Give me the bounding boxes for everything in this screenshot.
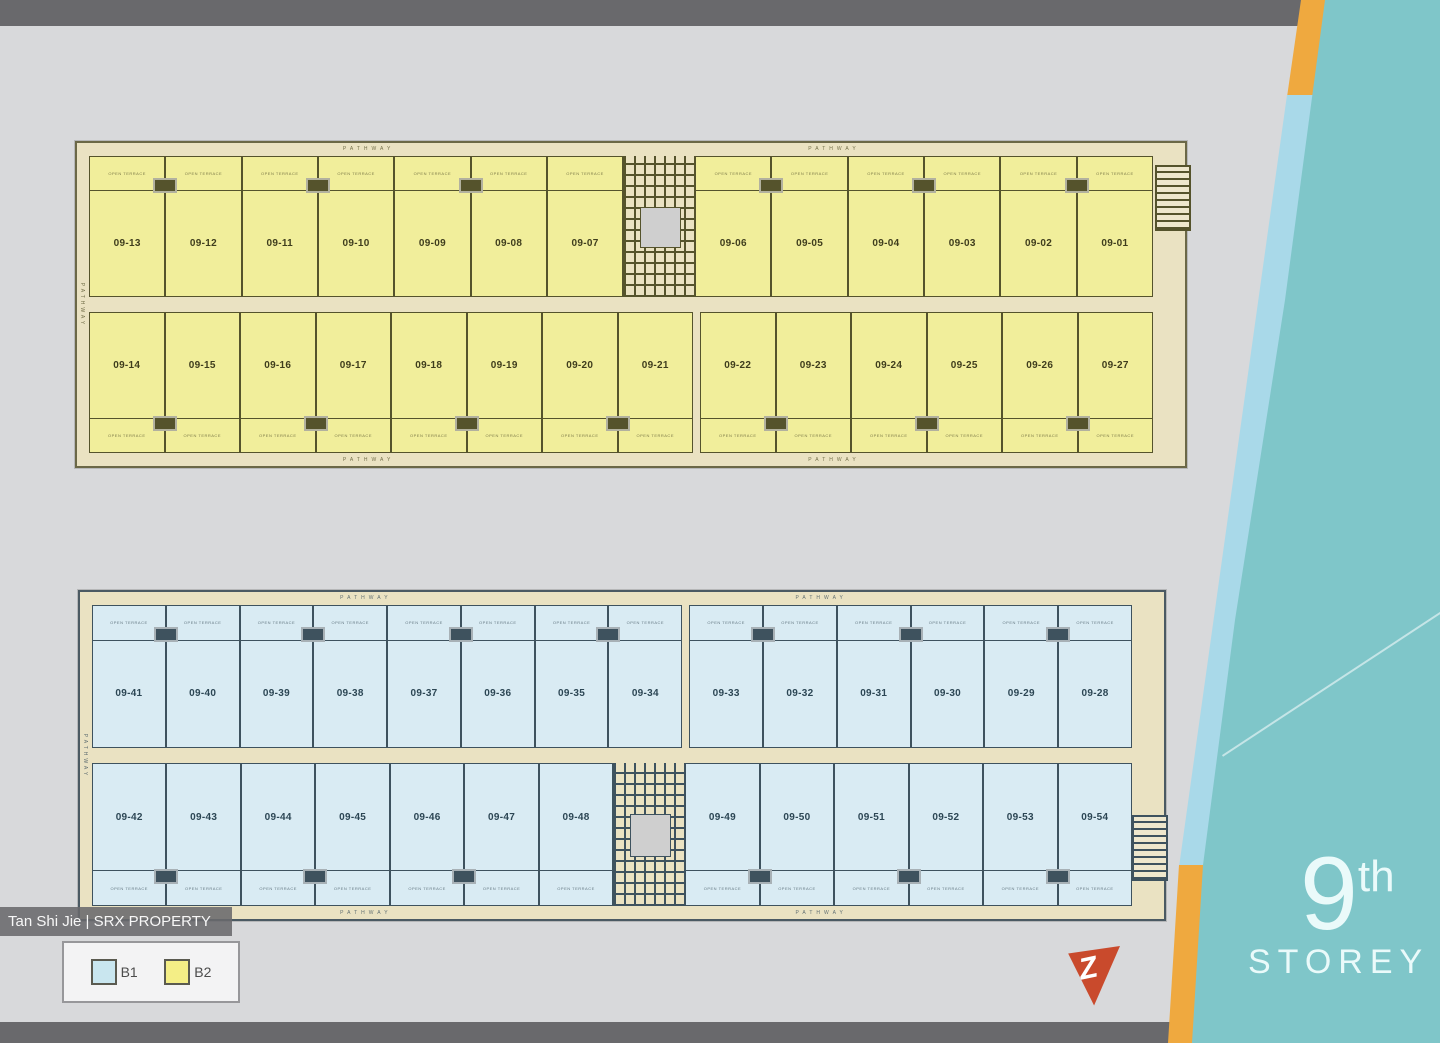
terrace-label: OPEN TERRACE (259, 886, 297, 891)
terrace-label: OPEN TERRACE (853, 886, 891, 891)
unit-number: 09-05 (772, 191, 846, 296)
unit-number: 09-48 (540, 764, 612, 870)
unit-number: 09-39 (241, 641, 313, 747)
wall-gap (693, 312, 700, 453)
toilet-fixture (154, 869, 178, 884)
unit-number: 09-03 (925, 191, 999, 296)
pathway-label: PATHWAY (340, 595, 391, 601)
legend-swatch-b1 (91, 959, 117, 985)
units-row-top: OPEN TERRACE09-41OPEN TERRACE09-40OPEN T… (92, 605, 1132, 748)
terrace-label: OPEN TERRACE (1021, 433, 1059, 438)
unit-09-53: OPEN TERRACE09-53 (983, 763, 1057, 906)
terrace-strip: OPEN TERRACE (925, 157, 999, 191)
toilet-fixture (915, 416, 939, 431)
terrace-strip: OPEN TERRACE (1078, 157, 1152, 191)
terrace-label: OPEN TERRACE (553, 620, 591, 625)
pathway-label-vertical: PATHWAY (79, 282, 85, 326)
unit-09-30: OPEN TERRACE09-30 (911, 605, 985, 748)
terrace-label: OPEN TERRACE (258, 620, 296, 625)
terrace-label: OPEN TERRACE (261, 171, 299, 176)
unit-09-49: OPEN TERRACE09-49 (685, 763, 759, 906)
unit-number: 09-35 (536, 641, 608, 747)
unit-number: 09-20 (543, 313, 617, 418)
legend-item-b1: B1 (91, 959, 138, 985)
unit-number: 09-04 (849, 191, 923, 296)
terrace-label: OPEN TERRACE (561, 433, 599, 438)
toilet-fixture (1065, 178, 1089, 193)
unit-number: 09-06 (696, 191, 770, 296)
unit-09-52: OPEN TERRACE09-52 (909, 763, 983, 906)
unit-09-01: OPEN TERRACE09-01 (1077, 156, 1153, 297)
terrace-label: OPEN TERRACE (108, 433, 146, 438)
unit-number: 09-18 (392, 313, 466, 418)
pathway-label: PATHWAY (795, 595, 846, 601)
terrace-label: OPEN TERRACE (110, 886, 148, 891)
corridor (89, 297, 1153, 312)
unit-number: 09-40 (167, 641, 239, 747)
terrace-strip: OPEN TERRACE (319, 157, 393, 191)
unit-number: 09-36 (462, 641, 534, 747)
toilet-fixture (304, 416, 328, 431)
unit-number: 09-30 (912, 641, 984, 747)
toilet-fixture (153, 416, 177, 431)
unit-number: 09-19 (468, 313, 542, 418)
unit-09-17: OPEN TERRACE09-17 (316, 312, 392, 453)
unit-09-40: OPEN TERRACE09-40 (166, 605, 240, 748)
toilet-fixture (899, 627, 923, 642)
watermark: Tan Shi Jie | SRX PROPERTY (0, 907, 232, 936)
unit-number: 09-33 (690, 641, 762, 747)
terrace-label: OPEN TERRACE (405, 620, 443, 625)
toilet-fixture (1046, 869, 1070, 884)
unit-09-36: OPEN TERRACE09-36 (461, 605, 535, 748)
stairwell (1155, 165, 1191, 231)
terrace-label: OPEN TERRACE (483, 886, 521, 891)
toilet-fixture (1066, 416, 1090, 431)
toilet-fixture (303, 869, 327, 884)
unit-number: 09-38 (314, 641, 386, 747)
terrace-label: OPEN TERRACE (704, 886, 742, 891)
terrace-label: OPEN TERRACE (414, 171, 452, 176)
unit-number: 09-09 (395, 191, 469, 296)
terrace-label: OPEN TERRACE (566, 171, 604, 176)
unit-number: 09-54 (1059, 764, 1131, 870)
unit-09-54: OPEN TERRACE09-54 (1058, 763, 1132, 906)
toilet-fixture (897, 869, 921, 884)
terrace-label: OPEN TERRACE (781, 620, 819, 625)
unit-number: 09-08 (472, 191, 546, 296)
unit-09-38: OPEN TERRACE09-38 (313, 605, 387, 748)
unit-09-51: OPEN TERRACE09-51 (834, 763, 908, 906)
unit-number: 09-37 (388, 641, 460, 747)
unit-09-44: OPEN TERRACE09-44 (241, 763, 315, 906)
unit-09-24: OPEN TERRACE09-24 (851, 312, 927, 453)
stairwell (1132, 815, 1168, 881)
unit-number: 09-12 (166, 191, 240, 296)
unit-09-14: OPEN TERRACE09-14 (89, 312, 165, 453)
terrace-strip: OPEN TERRACE (928, 418, 1002, 452)
decorative-line (1222, 611, 1440, 757)
terrace-strip: OPEN TERRACE (548, 157, 622, 191)
terrace-label: OPEN TERRACE (185, 171, 223, 176)
unit-09-46: OPEN TERRACE09-46 (390, 763, 464, 906)
terrace-label: OPEN TERRACE (946, 433, 984, 438)
unit-09-12: OPEN TERRACE09-12 (165, 156, 241, 297)
unit-number: 09-47 (465, 764, 537, 870)
toilet-fixture (306, 178, 330, 193)
terrace-label: OPEN TERRACE (627, 620, 665, 625)
unit-number: 09-15 (166, 313, 240, 418)
toilet-fixture (459, 178, 483, 193)
unit-09-32: OPEN TERRACE09-32 (763, 605, 837, 748)
unit-number: 09-50 (761, 764, 833, 870)
terrace-label: OPEN TERRACE (929, 620, 967, 625)
units-row-bottom: OPEN TERRACE09-42OPEN TERRACE09-43OPEN T… (92, 763, 1132, 906)
legend-label-b1: B1 (121, 964, 138, 980)
terrace-label: OPEN TERRACE (870, 433, 908, 438)
unit-number: 09-29 (985, 641, 1057, 747)
unit-09-23: OPEN TERRACE09-23 (776, 312, 852, 453)
terrace-label: OPEN TERRACE (1076, 620, 1114, 625)
unit-09-16: OPEN TERRACE09-16 (240, 312, 316, 453)
unit-09-48: OPEN TERRACE09-48 (539, 763, 613, 906)
unit-09-08: OPEN TERRACE09-08 (471, 156, 547, 297)
terrace-strip: OPEN TERRACE (777, 418, 851, 452)
terrace-label: OPEN TERRACE (707, 620, 745, 625)
unit-09-50: OPEN TERRACE09-50 (760, 763, 834, 906)
unit-number: 09-43 (167, 764, 239, 870)
unit-number: 09-16 (241, 313, 315, 418)
toilet-fixture (452, 869, 476, 884)
unit-09-42: OPEN TERRACE09-42 (92, 763, 166, 906)
unit-09-19: OPEN TERRACE09-19 (467, 312, 543, 453)
terrace-strip: OPEN TERRACE (166, 157, 240, 191)
unit-number: 09-13 (90, 191, 164, 296)
unit-number: 09-46 (391, 764, 463, 870)
corridor (92, 748, 1132, 763)
unit-number: 09-26 (1003, 313, 1077, 418)
unit-09-10: OPEN TERRACE09-10 (318, 156, 394, 297)
pathway-label: PATHWAY (808, 457, 859, 463)
unit-09-15: OPEN TERRACE09-15 (165, 312, 241, 453)
terrace-strip: OPEN TERRACE (472, 157, 546, 191)
srx-logo-icon: Z (1066, 946, 1120, 1008)
units-row-top: OPEN TERRACE09-13OPEN TERRACE09-12OPEN T… (89, 156, 1153, 297)
terrace-label: OPEN TERRACE (335, 433, 373, 438)
terrace-strip: OPEN TERRACE (619, 418, 693, 452)
terrace-label: OPEN TERRACE (927, 886, 965, 891)
legend-swatch-b2 (164, 959, 190, 985)
unit-number: 09-01 (1078, 191, 1152, 296)
terrace-label: OPEN TERRACE (795, 433, 833, 438)
terrace-label: OPEN TERRACE (331, 620, 369, 625)
terrace-strip: OPEN TERRACE (468, 418, 542, 452)
unit-09-18: OPEN TERRACE09-18 (391, 312, 467, 453)
terrace-label: OPEN TERRACE (867, 171, 905, 176)
terrace-label: OPEN TERRACE (791, 171, 829, 176)
pathway-label: PATHWAY (343, 146, 394, 152)
storey-word: STOREY (1248, 943, 1429, 982)
toilet-fixture (153, 178, 177, 193)
unit-number: 09-25 (928, 313, 1002, 418)
legend-item-b2: B2 (164, 959, 211, 985)
terrace-label: OPEN TERRACE (557, 886, 595, 891)
unit-number: 09-51 (835, 764, 907, 870)
unit-09-34: OPEN TERRACE09-34 (608, 605, 682, 748)
storey-number: 9 (1300, 853, 1358, 935)
unit-number: 09-21 (619, 313, 693, 418)
unit-number: 09-10 (319, 191, 393, 296)
service-core (623, 156, 695, 297)
terrace-label: OPEN TERRACE (408, 886, 446, 891)
terrace-strip: OPEN TERRACE (772, 157, 846, 191)
terrace-label: OPEN TERRACE (637, 433, 675, 438)
terrace-label: OPEN TERRACE (184, 433, 222, 438)
unit-09-27: OPEN TERRACE09-27 (1078, 312, 1154, 453)
unit-number: 09-28 (1059, 641, 1131, 747)
unit-number: 09-27 (1079, 313, 1153, 418)
unit-number: 09-34 (609, 641, 681, 747)
unit-09-22: OPEN TERRACE09-22 (700, 312, 776, 453)
unit-number: 09-52 (910, 764, 982, 870)
toilet-fixture (751, 627, 775, 642)
terrace-strip: OPEN TERRACE (166, 418, 240, 452)
block-b1: PATHWAY PATHWAY OPEN TERRACE09-41OPEN TE… (78, 590, 1166, 921)
top-bar (0, 0, 1440, 26)
toilet-fixture (759, 178, 783, 193)
terrace-label: OPEN TERRACE (715, 171, 753, 176)
terrace-strip: OPEN TERRACE (317, 418, 391, 452)
storey-suffix: th (1358, 855, 1395, 899)
terrace-label: OPEN TERRACE (184, 620, 222, 625)
toilet-fixture (764, 416, 788, 431)
terrace-label: OPEN TERRACE (110, 620, 148, 625)
wall-gap (682, 605, 689, 748)
unit-number: 09-31 (838, 641, 910, 747)
pathway-label: PATHWAY (795, 910, 846, 916)
pathway-label: PATHWAY (808, 146, 859, 152)
unit-number: 09-17 (317, 313, 391, 418)
unit-09-45: OPEN TERRACE09-45 (315, 763, 389, 906)
unit-09-26: OPEN TERRACE09-26 (1002, 312, 1078, 453)
storey-badge: 9 th STOREY (1248, 853, 1429, 982)
unit-number: 09-49 (686, 764, 758, 870)
terrace-label: OPEN TERRACE (334, 886, 372, 891)
unit-09-25: OPEN TERRACE09-25 (927, 312, 1003, 453)
terrace-label: OPEN TERRACE (1003, 620, 1041, 625)
terrace-label: OPEN TERRACE (855, 620, 893, 625)
unit-number: 09-42 (93, 764, 165, 870)
unit-09-43: OPEN TERRACE09-43 (166, 763, 240, 906)
terrace-label: OPEN TERRACE (944, 171, 982, 176)
unit-number: 09-11 (243, 191, 317, 296)
toilet-fixture (301, 627, 325, 642)
units-row-bottom: OPEN TERRACE09-14OPEN TERRACE09-15OPEN T… (89, 312, 1153, 453)
terrace-label: OPEN TERRACE (486, 433, 524, 438)
unit-09-05: OPEN TERRACE09-05 (771, 156, 847, 297)
terrace-label: OPEN TERRACE (1097, 433, 1135, 438)
terrace-label: OPEN TERRACE (778, 886, 816, 891)
floor-plan-canvas: PATHWAY PATHWAY OPEN TERRACE09-13OPEN TE… (0, 0, 1440, 1043)
unit-number: 09-14 (90, 313, 164, 418)
terrace-label: OPEN TERRACE (479, 620, 517, 625)
unit-number: 09-07 (548, 191, 622, 296)
toilet-fixture (596, 627, 620, 642)
terrace-label: OPEN TERRACE (108, 171, 146, 176)
unit-09-21: OPEN TERRACE09-21 (618, 312, 694, 453)
toilet-fixture (154, 627, 178, 642)
toilet-fixture (606, 416, 630, 431)
unit-09-20: OPEN TERRACE09-20 (542, 312, 618, 453)
terrace-strip: OPEN TERRACE (1079, 418, 1153, 452)
unit-number: 09-53 (984, 764, 1056, 870)
terrace-label: OPEN TERRACE (337, 171, 375, 176)
unit-number: 09-22 (701, 313, 775, 418)
terrace-label: OPEN TERRACE (259, 433, 297, 438)
unit-09-28: OPEN TERRACE09-28 (1058, 605, 1132, 748)
terrace-strip: OPEN TERRACE (540, 870, 612, 905)
unit-number: 09-24 (852, 313, 926, 418)
pathway-label-vertical: PATHWAY (82, 733, 88, 777)
terrace-label: OPEN TERRACE (1002, 886, 1040, 891)
toilet-fixture (449, 627, 473, 642)
pathway-label: PATHWAY (340, 910, 391, 916)
unit-number: 09-41 (93, 641, 165, 747)
unit-09-47: OPEN TERRACE09-47 (464, 763, 538, 906)
unit-number: 09-32 (764, 641, 836, 747)
terrace-label: OPEN TERRACE (410, 433, 448, 438)
unit-number: 09-23 (777, 313, 851, 418)
legend-label-b2: B2 (194, 964, 211, 980)
terrace-label: OPEN TERRACE (1076, 886, 1114, 891)
unit-number: 09-44 (242, 764, 314, 870)
pathway-label: PATHWAY (343, 457, 394, 463)
block-b2: PATHWAY PATHWAY OPEN TERRACE09-13OPEN TE… (75, 141, 1187, 468)
toilet-fixture (912, 178, 936, 193)
terrace-label: OPEN TERRACE (185, 886, 223, 891)
toilet-fixture (1046, 627, 1070, 642)
unit-number: 09-02 (1001, 191, 1075, 296)
terrace-label: OPEN TERRACE (490, 171, 528, 176)
unit-09-03: OPEN TERRACE09-03 (924, 156, 1000, 297)
toilet-fixture (455, 416, 479, 431)
terrace-label: OPEN TERRACE (1020, 171, 1058, 176)
legend: B1 B2 (62, 941, 240, 1003)
unit-number: 09-45 (316, 764, 388, 870)
service-core (613, 763, 685, 906)
srx-logo-letter: Z (1076, 950, 1101, 987)
terrace-label: OPEN TERRACE (719, 433, 757, 438)
terrace-label: OPEN TERRACE (1096, 171, 1134, 176)
toilet-fixture (748, 869, 772, 884)
unit-09-07: OPEN TERRACE09-07 (547, 156, 623, 297)
